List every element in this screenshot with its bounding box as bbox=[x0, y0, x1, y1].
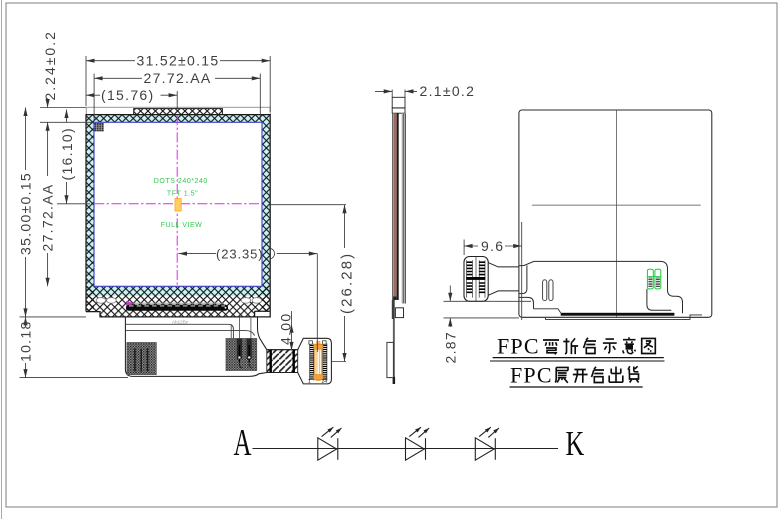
svg-text:2.24±0.2: 2.24±0.2 bbox=[42, 30, 58, 100]
svg-text:2.1±0.2: 2.1±0.2 bbox=[420, 83, 476, 99]
svg-text:31.52±0.15: 31.52±0.15 bbox=[137, 52, 220, 68]
svg-text:TFT 1.5": TFT 1.5" bbox=[167, 191, 198, 198]
svg-text:K: K bbox=[566, 424, 585, 463]
svg-text:Ab12Bz: Ab12Bz bbox=[172, 320, 189, 325]
svg-text:FPC: FPC bbox=[497, 334, 540, 359]
svg-text:(23.35): (23.35) bbox=[216, 247, 264, 262]
svg-text:9.6: 9.6 bbox=[481, 238, 504, 254]
svg-text:4.00: 4.00 bbox=[278, 313, 294, 345]
svg-text:35.00±0.15: 35.00±0.15 bbox=[18, 172, 34, 255]
svg-text:27.72.AA: 27.72.AA bbox=[144, 70, 212, 86]
svg-text:27.72.AA: 27.72.AA bbox=[40, 184, 56, 252]
svg-text:A: A bbox=[234, 422, 252, 463]
svg-text:10.18: 10.18 bbox=[18, 320, 34, 362]
svg-text:(26.28): (26.28) bbox=[339, 252, 356, 314]
svg-text:DOTS 240*240: DOTS 240*240 bbox=[154, 178, 208, 185]
svg-text:FPC: FPC bbox=[510, 363, 553, 388]
svg-text:2.87: 2.87 bbox=[443, 331, 459, 363]
svg-text:1: 1 bbox=[308, 379, 311, 385]
svg-text:(16.10): (16.10) bbox=[59, 127, 75, 180]
svg-text:FULL VIEW: FULL VIEW bbox=[161, 222, 203, 229]
svg-text:(15.76): (15.76) bbox=[101, 87, 154, 103]
svg-text:24: 24 bbox=[322, 379, 328, 385]
